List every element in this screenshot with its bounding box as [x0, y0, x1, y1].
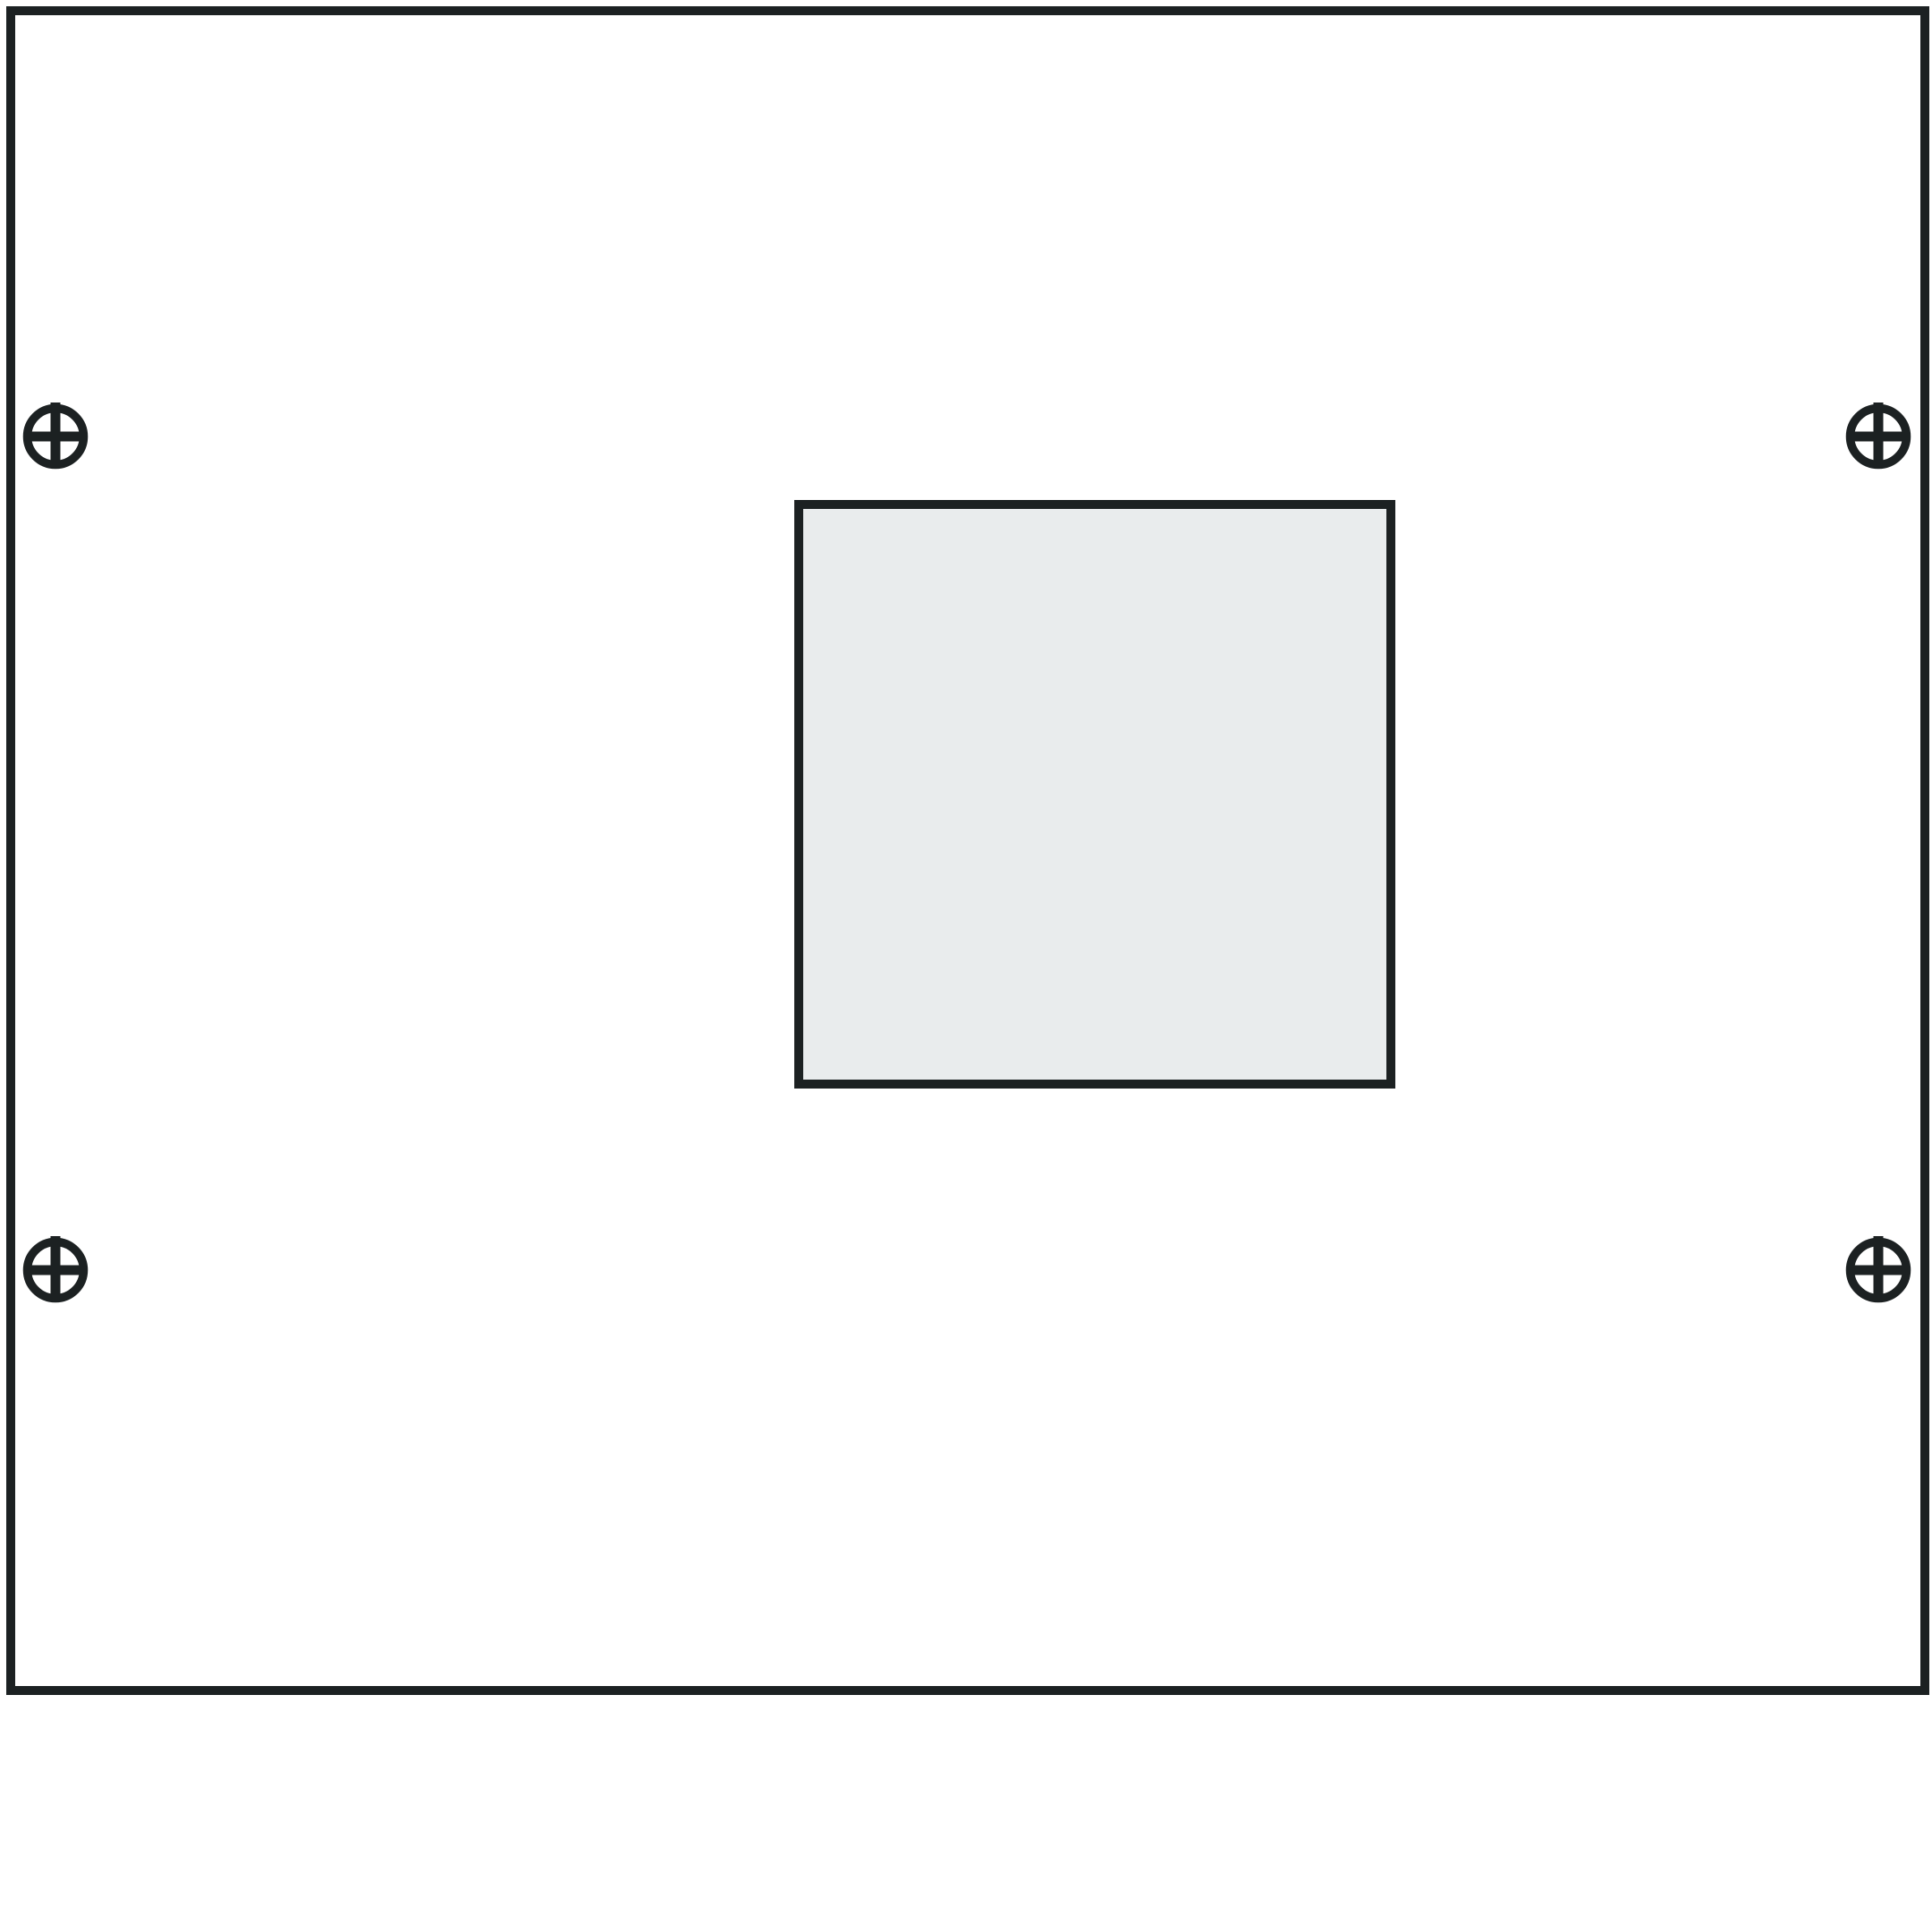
- panel-diagram: [0, 0, 1932, 1932]
- screw-icon: [28, 1236, 84, 1301]
- screw-icon: [1851, 402, 1907, 467]
- panel-diagram-canvas: [0, 0, 1932, 1932]
- screw-icon: [28, 402, 84, 467]
- screw-icon: [1851, 1236, 1907, 1301]
- device-cutout: [799, 504, 1391, 1084]
